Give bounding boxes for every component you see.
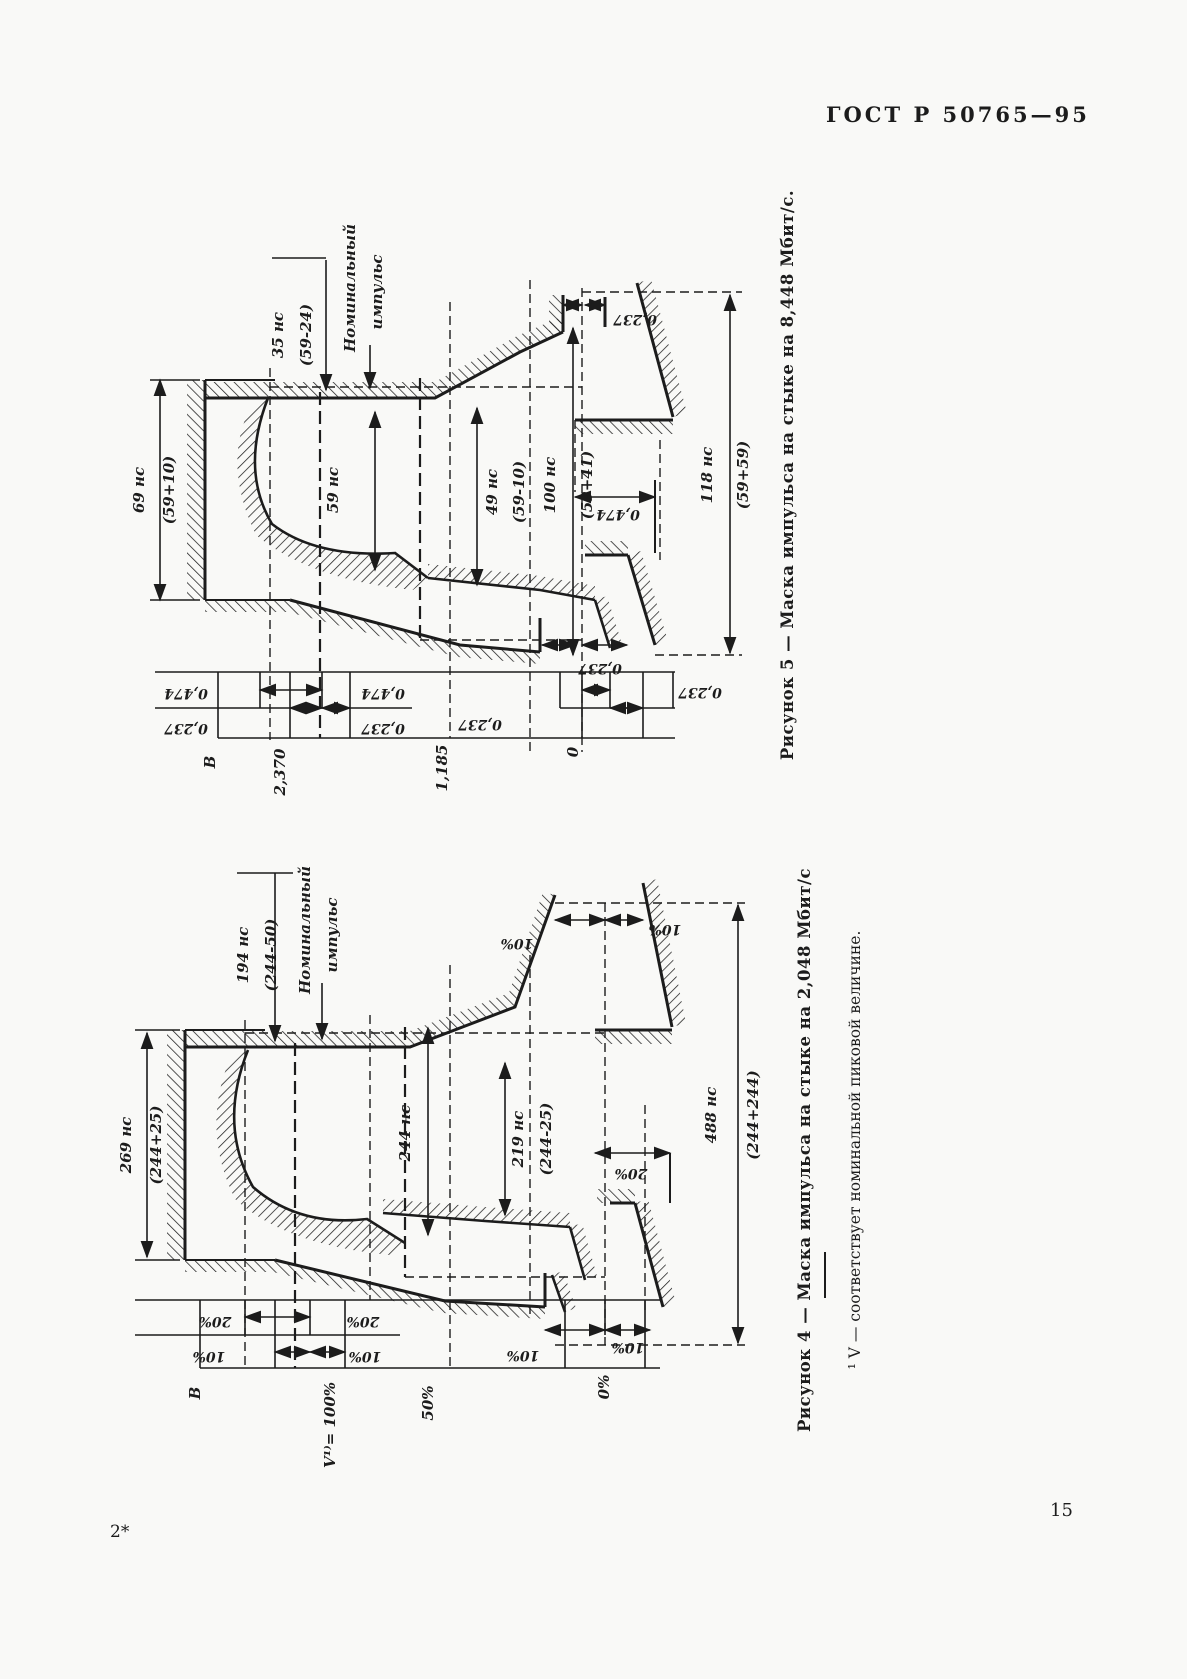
fig5-value-0474: 0,474 <box>596 506 640 522</box>
fig4-pct-10: 10% <box>649 921 682 937</box>
fig5-axis-volts: В <box>201 756 219 770</box>
fig5-nominal-label-1: Номинальный <box>341 224 359 353</box>
fig4-axis-volts: В <box>186 1387 204 1401</box>
fig5-value-0237: 0,237 <box>361 720 405 736</box>
fig4-axis-100pct: V¹⁾= 100% <box>321 1382 339 1468</box>
fig4-nominal-label-1: Номинальный <box>296 866 314 995</box>
fig5-value-0474: 0,474 <box>361 685 405 701</box>
fig4-pct-10: 10% <box>612 1339 645 1355</box>
fig5-axis-2370: 2,370 <box>271 748 289 797</box>
footer-mark: 2* <box>110 1522 129 1542</box>
document-header: ГОСТ Р 50765—95 <box>826 102 1090 127</box>
fig5-value-0474: 0,474 <box>164 685 208 701</box>
fig5-dim-35-label: 35 нс <box>269 312 287 358</box>
fig4-dim-269-label: 269 нс <box>117 1117 135 1175</box>
fig5-dim-69-tol: (59+10) <box>160 456 178 525</box>
fig4-pct-10: 10% <box>501 935 534 951</box>
fig5-value-0237: 0,237 <box>458 716 502 732</box>
fig4-dim-219-tol: (244-25) <box>537 1103 555 1176</box>
fig4-dim-219-label: 219 нс <box>509 1111 527 1169</box>
fig4-pct-20: 20% <box>347 1313 381 1329</box>
fig4-pct-10: 10% <box>193 1348 226 1364</box>
fig4-dim-488-tol: (244+244) <box>744 1070 762 1159</box>
figure4-diagram: 269 нс (244+25) 194 нс (244-50) Номиналь… <box>115 815 795 1480</box>
fig4-pct-10: 10% <box>349 1348 382 1364</box>
fig4-axis-0pct: 0% <box>595 1375 613 1400</box>
fig5-dim-100-tol: (59+41) <box>578 451 596 520</box>
fig5-dim-100-label: 100 нс <box>541 457 559 514</box>
fig4-axis-50pct: 50% <box>419 1385 437 1420</box>
fig5-nominal-label-2: импульс <box>368 254 386 329</box>
fig4-pct-20: 20% <box>615 1165 649 1181</box>
fig4-nominal-label-2: импульс <box>323 897 341 972</box>
fig4-pct-20: 20% <box>199 1313 233 1329</box>
fig5-value-0237: 0,237 <box>613 311 657 327</box>
fig5-value-0237: 0,237 <box>578 660 622 676</box>
fig4-dim-194-tol: (244-50) <box>262 919 280 992</box>
fig4-dim-488-label: 488 нс <box>702 1087 720 1144</box>
fig5-axis-1185: 1,185 <box>433 745 451 792</box>
footnote-text: ¹ V — соответствует номинальной пиковой … <box>846 840 868 1460</box>
fig4-dim-269-tol: (244+25) <box>147 1106 165 1185</box>
footnote-rule <box>824 1252 826 1298</box>
fig5-axis-0: 0 <box>564 746 582 757</box>
fig5-value-0237: 0,237 <box>164 720 208 736</box>
fig5-hatch-regions <box>187 279 687 664</box>
figure5-diagram: 69 нс (59+10) 35 нс (59-24) Номинальный … <box>130 140 770 810</box>
fig5-dim-35-tol: (59-24) <box>297 304 315 366</box>
fig5-dim-49-tol: (59-10) <box>510 461 528 523</box>
fig5-dim-49-label: 49 нс <box>483 469 501 515</box>
fig5-scale-strip <box>155 672 675 738</box>
fig4-dim-244-label: 244 нс <box>396 1105 414 1163</box>
figure4-caption: Рисунок 4 — Маска импульса на стыке на 2… <box>795 820 819 1480</box>
fig5-dim-118-tol: (59+59) <box>734 441 752 510</box>
fig4-pct-10: 10% <box>507 1347 540 1363</box>
fig5-dim-69-label: 69 нс <box>130 467 148 513</box>
page-number: 15 <box>1050 1500 1073 1521</box>
fig5-dim-59-label: 59 нс <box>324 467 342 513</box>
document-page: ГОСТ Р 50765—95 <box>0 0 1187 1679</box>
fig5-value-0237: 0,237 <box>678 684 722 700</box>
figure5-caption: Рисунок 5 — Маска импульса на стыке на 8… <box>778 145 802 805</box>
fig5-dim-118-label: 118 нс <box>698 447 716 504</box>
fig4-dim-194-label: 194 нс <box>234 927 252 984</box>
